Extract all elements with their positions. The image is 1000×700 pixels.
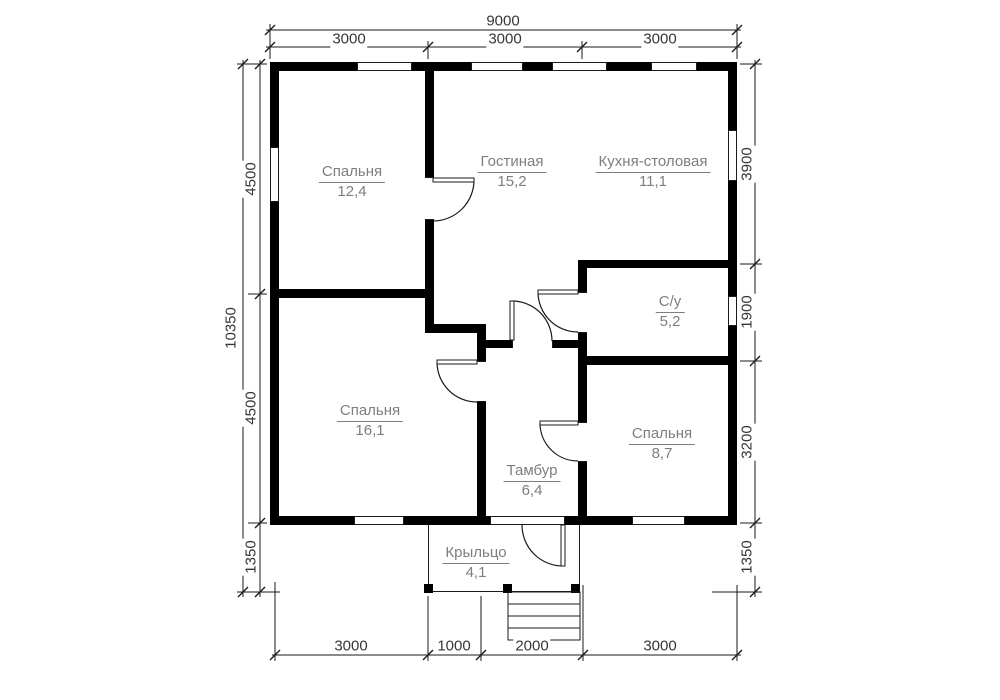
window-bedroom1-top	[357, 62, 412, 71]
room-label-bathroom: С/у 5,2	[656, 293, 685, 331]
room-label-living-room: Гостиная 15,2	[478, 153, 547, 191]
room-area: 8,7	[629, 445, 695, 463]
dim-label-left-2: 4500	[243, 389, 260, 426]
door-opening-wc	[578, 292, 587, 333]
wall-bedroom1-bedroom2	[270, 289, 434, 298]
dim-label-left-total: 10350	[223, 305, 240, 351]
room-name: Спальня	[629, 425, 695, 445]
door-leaf-bedroom3	[540, 421, 578, 425]
room-name: С/у	[656, 293, 685, 313]
dim-label-left-1: 4500	[243, 160, 260, 197]
door-arc-living	[512, 301, 552, 341]
dim-label-top-3: 3000	[641, 31, 678, 48]
room-label-bedroom-2: Спальня 16,1	[337, 402, 403, 440]
dim-label-right-2: 1900	[739, 293, 756, 330]
porch-post-center	[503, 584, 512, 593]
door-opening-bedroom2	[477, 361, 486, 402]
door-leaf-living	[510, 301, 514, 340]
window-kitchen-top1	[552, 62, 607, 71]
window-bedroom2-bottom	[354, 516, 404, 525]
door-leaf-bedroom1	[433, 178, 474, 182]
window-bedroom3-bottom	[632, 516, 685, 525]
room-area: 6,4	[504, 482, 561, 500]
window-wc-right	[728, 296, 737, 326]
room-area: 15,2	[478, 173, 547, 191]
room-area: 11,1	[596, 173, 711, 191]
door-arc-bedroom1	[433, 180, 474, 221]
window-living-top	[471, 62, 523, 71]
wall-wc-north	[578, 260, 737, 268]
room-name: Тамбур	[504, 462, 561, 482]
dim-label-bottom-3: 2000	[513, 638, 550, 655]
door-leaf-wc	[538, 290, 578, 294]
dim-label-bottom-1: 3000	[332, 638, 369, 655]
dim-label-right-3: 3200	[739, 423, 756, 460]
floor-plan: Спальня 12,4 Гостиная 15,2 Кухня-столова…	[0, 0, 1000, 700]
window-kitchen-top2	[651, 62, 697, 71]
room-name: Спальня	[319, 163, 385, 183]
room-area: 12,4	[319, 183, 385, 201]
window-bedroom1-left	[270, 147, 279, 202]
room-name: Крыльцо	[442, 544, 509, 564]
dim-label-right-4: 1350	[739, 538, 756, 575]
dim-label-top-1: 3000	[330, 31, 367, 48]
room-label-bedroom-1: Спальня 12,4	[319, 163, 385, 201]
wall-vestibule-west	[477, 324, 486, 525]
room-name: Спальня	[337, 402, 403, 422]
door-leaf-bedroom2	[437, 360, 477, 364]
dim-label-bottom-4: 3000	[641, 638, 678, 655]
dim-label-right-1: 3900	[739, 145, 756, 182]
room-name: Кухня-столовая	[596, 153, 711, 173]
dim-label-top-total: 9000	[484, 13, 521, 30]
door-symbols	[433, 178, 578, 566]
steps-outline	[508, 592, 580, 640]
door-arc-bedroom3	[540, 423, 578, 461]
room-label-vestibule: Тамбур 6,4	[504, 462, 561, 500]
room-label-kitchen-dining: Кухня-столовая 11,1	[596, 153, 711, 191]
dim-label-left-3: 1350	[243, 538, 260, 575]
door-opening-bedroom1	[425, 177, 434, 220]
door-arc-bedroom2	[437, 362, 477, 402]
wall-wc-south	[578, 356, 737, 365]
door-opening-bedroom3	[578, 422, 587, 462]
room-label-bedroom-3: Спальня 8,7	[629, 425, 695, 463]
room-area: 4,1	[442, 564, 509, 582]
room-label-porch: Крыльцо 4,1	[442, 544, 509, 582]
door-opening-living	[512, 340, 553, 348]
dim-label-bottom-2: 1000	[435, 638, 472, 655]
window-kitchen-right	[728, 130, 737, 181]
dim-ticks-left	[238, 59, 265, 597]
door-opening-entrance	[490, 516, 565, 525]
room-area: 5,2	[656, 313, 685, 331]
dim-label-top-2: 3000	[486, 31, 523, 48]
porch-post-right	[571, 584, 580, 593]
linework-overlay	[0, 0, 1000, 700]
room-name: Гостиная	[478, 153, 547, 173]
porch-post-left	[424, 584, 433, 593]
porch-steps	[508, 592, 580, 640]
room-area: 16,1	[337, 422, 403, 440]
door-arc-wc	[538, 292, 578, 332]
